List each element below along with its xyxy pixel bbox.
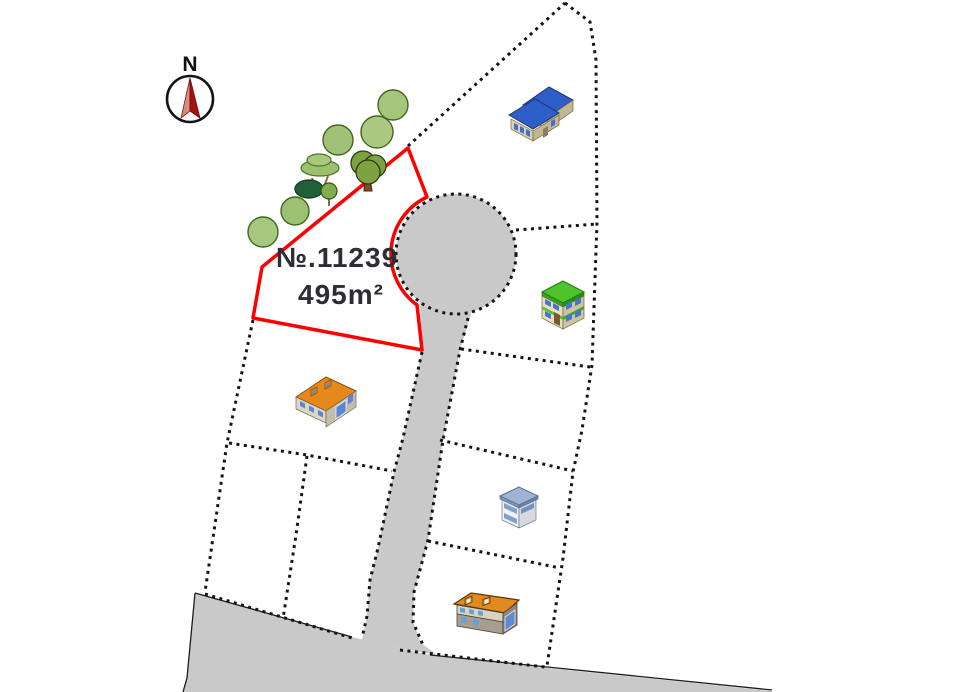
- tree-icon: [281, 197, 309, 225]
- tree-icon: [361, 116, 393, 148]
- map-background: [0, 0, 979, 692]
- tree-icon: [323, 125, 353, 155]
- window: [473, 619, 479, 626]
- window: [461, 617, 467, 624]
- tree-icon: [378, 90, 408, 120]
- tree-icon-dark: [295, 180, 323, 198]
- plot-number-label: №.11239: [276, 242, 398, 273]
- plot-area-label: 495m²: [298, 279, 384, 310]
- lot-map: N №.11239 495m²: [0, 0, 979, 692]
- north-label: N: [182, 53, 197, 76]
- small-office-building-icon: [500, 487, 538, 528]
- tree-icon: [248, 217, 278, 247]
- map-canvas: N №.11239 495m²: [0, 0, 979, 692]
